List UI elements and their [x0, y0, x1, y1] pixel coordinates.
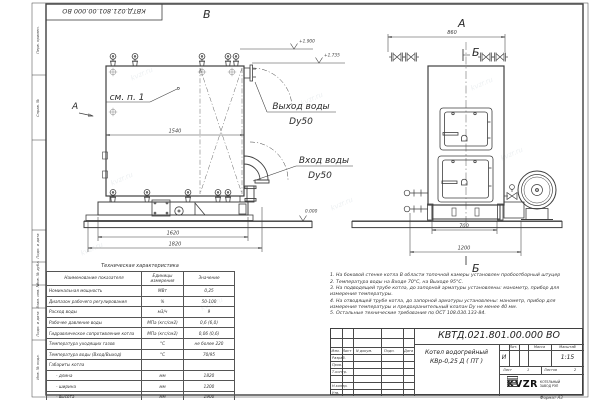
- cell-name: - ширина: [47, 381, 142, 392]
- cell-value: 70/95: [184, 349, 235, 360]
- col-list: Лист: [343, 349, 352, 353]
- cell-value: 0,6 (6,0): [184, 317, 235, 328]
- note-line: 1. На боковой стенке котла В области топ…: [330, 273, 582, 279]
- scale-value: 1:15: [551, 354, 584, 361]
- sheet-value: 1: [527, 368, 529, 372]
- outlet-label: Выход воды: [272, 102, 329, 112]
- sheets-label: Листов: [544, 368, 557, 372]
- scale-header: Масштаб: [551, 345, 584, 349]
- cell-name: - длина: [47, 370, 142, 381]
- blower-fan: [504, 171, 556, 220]
- table-row: Температура воды (Вход/Выход)°С70/95: [47, 349, 235, 360]
- inlet-label: Вход воды: [299, 156, 349, 166]
- elevation-marks: +1.900 +1.735 0.000: [240, 39, 345, 222]
- cell-name: Рабочее давление воды: [47, 317, 142, 328]
- pipe-labels: Выход воды Dy50 Вход воды Dy50: [253, 82, 353, 181]
- row-utv: Утв.: [332, 391, 339, 395]
- table-row: Гидравлическое сопротивление котлаМПа (к…: [47, 328, 235, 339]
- dim-860: 860: [447, 30, 457, 36]
- cell-name: Температура уходящих газов: [47, 338, 142, 349]
- lit-value: И: [499, 354, 509, 361]
- side-top-valves: [389, 53, 508, 62]
- view-arrow-label: А: [71, 102, 78, 112]
- elev-ground: 0.000: [305, 209, 318, 215]
- mass-header: Масса: [528, 345, 551, 349]
- cell-value: не более 220: [184, 338, 235, 349]
- cell-name: Номинальная мощность: [47, 286, 142, 297]
- strip-label: Взам. инв. №: [36, 283, 40, 308]
- col-izm: Изм.: [332, 349, 340, 353]
- elev-mid: +1.735: [324, 53, 340, 59]
- table-title: Техническая характеристика: [46, 263, 234, 271]
- sheet-label: Лист: [503, 368, 512, 372]
- table-row: Номинальная мощностьМВт0,25: [47, 286, 235, 297]
- doc-number: КВТД.021.801.00.000 ВО: [414, 330, 584, 341]
- note-line: 4. На отводящей трубе котла, до запорной…: [330, 299, 582, 310]
- cell-unit: мм: [142, 391, 184, 400]
- company-block: KVZR КОТЕЛЬНЫЙ ЗАВОД РЭП: [507, 376, 581, 393]
- title-block: КВТД.021.801.00.000 ВО Изм. Лист N докум…: [330, 328, 583, 395]
- cell-name: Гидравлическое сопротивление котла: [47, 328, 142, 339]
- cell-unit: %: [142, 296, 184, 307]
- table-row: - длинамм1820: [47, 370, 235, 381]
- front-view: В: [71, 8, 292, 252]
- cell-value: 1820: [184, 370, 235, 381]
- note-line: 3. На подводящей трубе котла, до запорно…: [330, 286, 582, 297]
- col-podp: Подп.: [384, 349, 395, 353]
- sheets-value: 2: [574, 368, 576, 372]
- dim-1540: 1540: [169, 129, 182, 135]
- side-left-valves: [404, 190, 428, 213]
- cell-name: Диапазон рабочего регулирования: [47, 296, 142, 307]
- table-row: Расход водым3/ч9: [47, 307, 235, 318]
- cell-value: 1200: [184, 381, 235, 392]
- cell-value: 0,06 (0,6): [184, 328, 235, 339]
- lit-header: Лит.: [499, 345, 528, 349]
- col-data: Дата: [404, 349, 413, 353]
- dim-1820: 1820: [169, 242, 182, 248]
- tech-characteristics-table: Техническая характеристика Наименование …: [46, 263, 234, 400]
- cell-unit: [142, 360, 184, 371]
- cell-unit: °С: [142, 349, 184, 360]
- table-row: Температура уходящих газов°Сне более 220: [47, 338, 235, 349]
- inlet-elbow: [244, 156, 269, 202]
- dim-700: 700: [459, 224, 469, 230]
- strip-label: Справ. №: [36, 99, 40, 117]
- strip-label: Подп. и дата: [36, 311, 40, 337]
- cell-unit: м3/ч: [142, 307, 184, 318]
- cell-value: 0,25: [184, 286, 235, 297]
- engineering-drawing-page: kvzr.ru kvzr.ru kvzr.ru kvzr.ru kvzr.ru …: [0, 0, 600, 400]
- cell-unit: МВт: [142, 286, 184, 297]
- cell-name: - высота: [47, 391, 142, 400]
- ground: [84, 221, 562, 228]
- col-doc: N докум.: [356, 349, 372, 353]
- header-unit: Единицы измерения: [142, 272, 184, 286]
- side-view-label: А: [457, 17, 466, 30]
- strip-label: Перв. примен.: [36, 26, 40, 54]
- product-name-line2: КВр-0,25 Д ( ПТ ): [415, 358, 498, 365]
- outlet-dn: Dy50: [289, 117, 313, 127]
- cell-unit: мм: [142, 370, 184, 381]
- kvzr-logo-icon: [507, 376, 518, 387]
- rotated-doc-number-stamp: КВТД.021.801.00.000 ВО: [62, 7, 146, 15]
- strip-label: Инв. № дубл.: [36, 260, 40, 285]
- cell-unit: МПа (кгс/см2): [142, 328, 184, 339]
- format-note: Формат А3: [540, 395, 563, 400]
- note-line: 5. Остальные технические требования по О…: [330, 311, 582, 317]
- strip-label: Инв. № подл.: [36, 354, 40, 379]
- table-row: Габариты котла: [47, 360, 235, 371]
- side-base: [428, 204, 504, 220]
- table-row: Рабочее давление водыМПа (кгс/см2)0,6 (6…: [47, 317, 235, 328]
- section-label-top: Б: [472, 46, 480, 59]
- header-value: Значение: [184, 272, 235, 286]
- row-nkontr: Н.контр.: [332, 384, 348, 388]
- cell-unit: °С: [142, 338, 184, 349]
- technical-notes: 1. На боковой стенке котла В области топ…: [330, 273, 582, 318]
- cell-name: Габариты котла: [47, 360, 142, 371]
- cell-unit: мм: [142, 381, 184, 392]
- strip-label: Подп. и дата: [36, 233, 40, 259]
- outlet-stub: [244, 65, 256, 81]
- cell-value: 1900: [184, 391, 235, 400]
- cell-value: [184, 360, 235, 371]
- cell-value: 50-100: [184, 296, 235, 307]
- front-view-label: В: [203, 8, 211, 21]
- note-line: 2. Температура воды на Входе 70°С, на Вы…: [330, 280, 582, 286]
- side-view: А 860 Б: [388, 17, 556, 275]
- cell-unit: МПа (кгс/см2): [142, 317, 184, 328]
- table-header-row: Наименование показателя Единицы измерени…: [47, 272, 235, 286]
- row-tkontr: Т.контр.: [332, 370, 347, 374]
- row-razrab: Разраб.: [332, 356, 346, 360]
- company-line2: ЗАВОД РЭП: [540, 384, 558, 388]
- header-name: Наименование показателя: [47, 272, 142, 286]
- row-prov: Пров.: [332, 363, 342, 367]
- dim-1200: 1200: [458, 246, 471, 252]
- lower-door: [438, 156, 493, 202]
- cell-value: 9: [184, 307, 235, 318]
- product-name-line1: Котел водогрейный: [415, 349, 498, 356]
- table-row: - высотамм1900: [47, 391, 235, 400]
- table-row: - ширинамм1200: [47, 381, 235, 392]
- table-row: Диапазон рабочего регулирования%50-100: [47, 296, 235, 307]
- side-right-valve: [504, 185, 517, 200]
- top-valves: [110, 54, 239, 67]
- cell-name: Температура воды (Вход/Выход): [47, 349, 142, 360]
- elev-top: +1.900: [299, 39, 315, 45]
- cell-name: Расход воды: [47, 307, 142, 318]
- see-note-callout: см. п. 1: [110, 93, 145, 103]
- inlet-dn: Dy50: [308, 171, 332, 181]
- dim-1620: 1620: [167, 231, 180, 237]
